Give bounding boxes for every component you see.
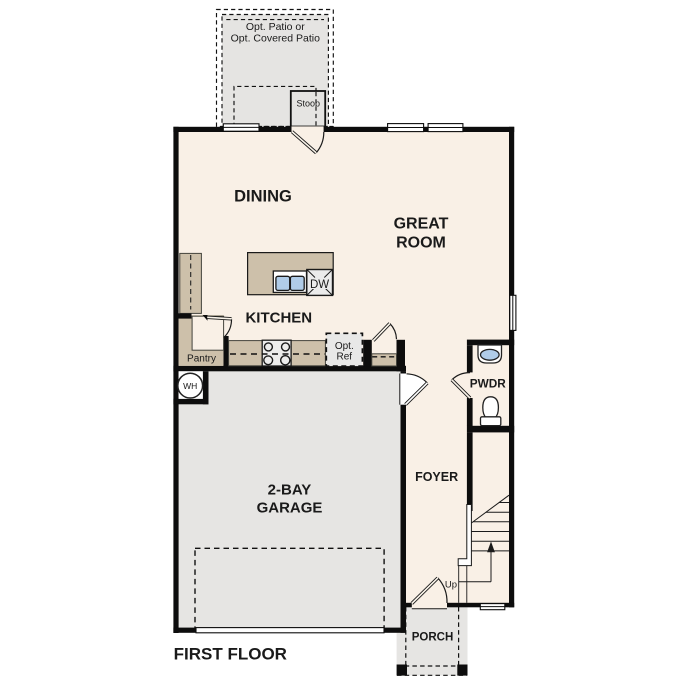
svg-text:DINING: DINING [234,188,292,206]
svg-text:FIRST FLOOR: FIRST FLOOR [174,645,287,664]
svg-text:Opt. Patio or: Opt. Patio or [246,21,305,33]
svg-text:GARAGE: GARAGE [257,500,323,517]
svg-text:Pantry: Pantry [187,354,216,365]
svg-text:Opt.: Opt. [335,341,354,352]
svg-text:Ref: Ref [337,352,353,363]
svg-text:KITCHEN: KITCHEN [245,310,312,327]
svg-text:PORCH: PORCH [412,631,454,643]
svg-text:ROOM: ROOM [396,234,446,251]
svg-text:DW: DW [310,279,329,291]
svg-text:GREAT: GREAT [394,216,449,233]
svg-text:Stoop: Stoop [297,99,321,109]
svg-text:PWDR: PWDR [470,377,507,391]
svg-text:Up: Up [445,580,457,591]
svg-text:Opt. Covered Patio: Opt. Covered Patio [231,33,320,45]
svg-text:FOYER: FOYER [415,470,458,484]
svg-text:2-BAY: 2-BAY [268,481,312,498]
svg-text:WH: WH [183,381,197,391]
